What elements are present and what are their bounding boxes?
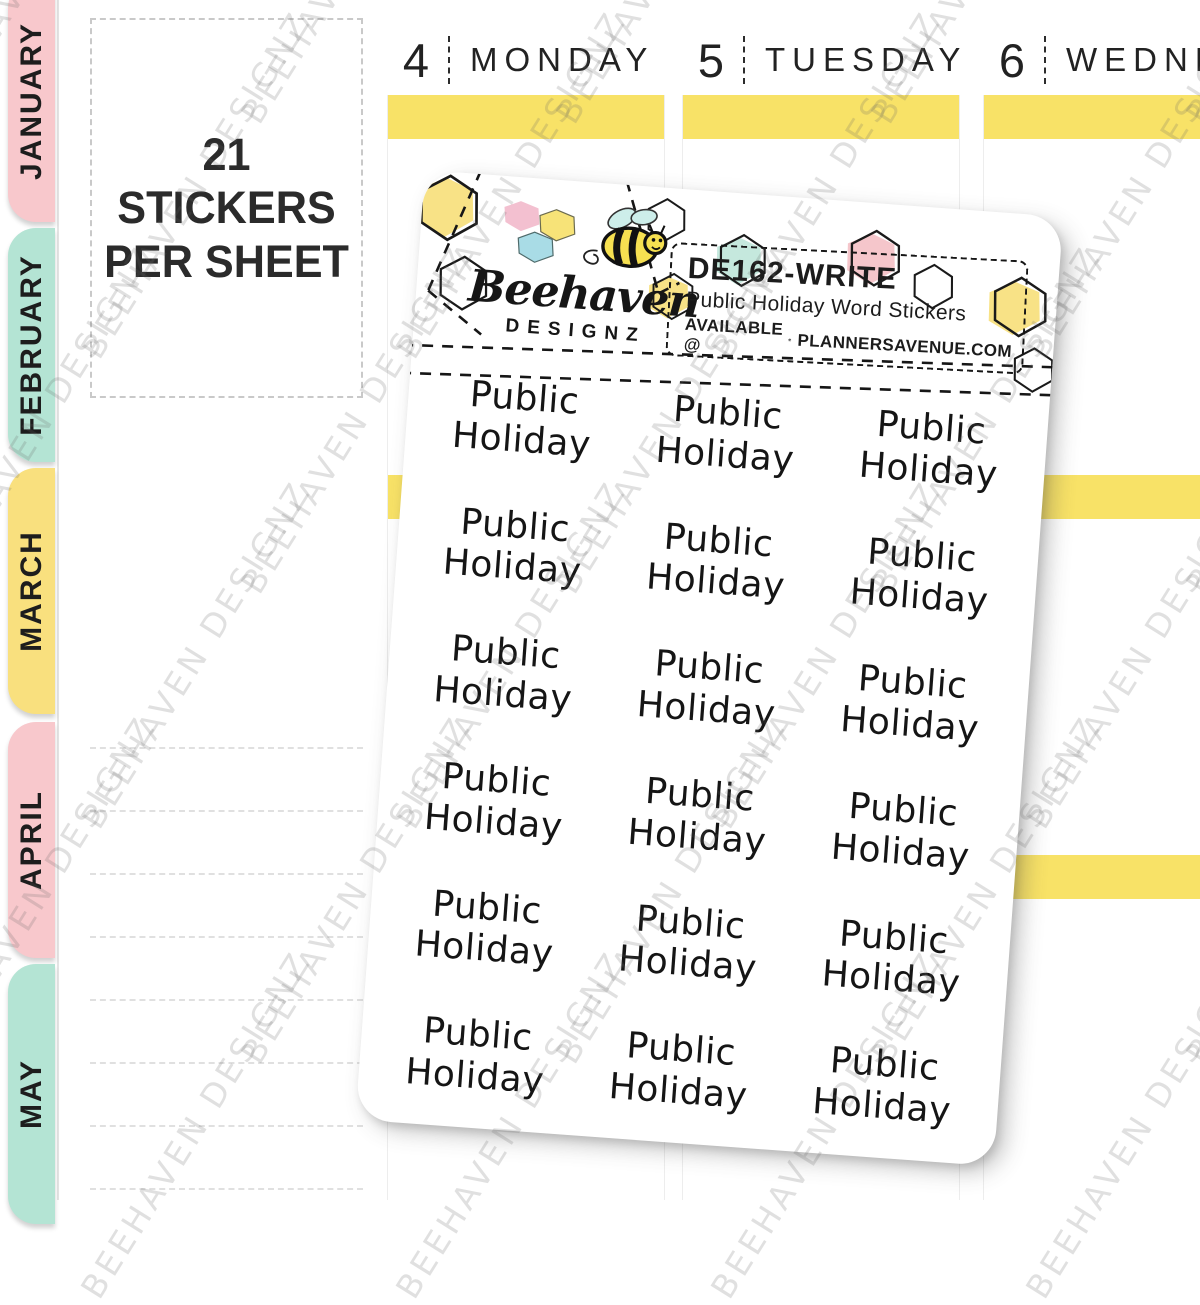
header-divider <box>1044 36 1046 84</box>
month-tab-label: MARCH <box>15 530 49 652</box>
sticker-public-holiday: PublicHoliday <box>573 1000 786 1142</box>
storefront-icon <box>788 329 792 350</box>
month-tab-april: APRIL <box>8 722 55 958</box>
brand-logo: Beehaven DESIGNZ <box>465 190 695 351</box>
highlight-bar <box>683 95 959 139</box>
sticker-public-holiday: PublicHoliday <box>795 760 1008 902</box>
day-name: MONDAY <box>470 41 654 79</box>
highlight-bar <box>984 855 1200 899</box>
header-divider <box>743 36 745 84</box>
sticker-public-holiday: PublicHoliday <box>823 378 1036 520</box>
day-name: WEDNESDAY <box>1066 41 1200 79</box>
day-header-tuesday: 5 TUESDAY <box>685 30 967 90</box>
highlight-bar <box>388 95 664 139</box>
sticker-public-holiday: PublicHoliday <box>777 1015 990 1157</box>
ruled-line <box>90 873 363 875</box>
ruled-line <box>90 1062 363 1064</box>
month-tab-march: MARCH <box>8 468 55 714</box>
ruled-line <box>90 810 363 812</box>
month-tab-february: FEBRUARY <box>8 228 55 462</box>
sticker-public-holiday: PublicHoliday <box>379 858 592 1000</box>
highlight-bar <box>984 95 1200 139</box>
month-tab-january: JANUARY <box>8 0 55 222</box>
sticker-public-holiday: PublicHoliday <box>620 363 833 505</box>
day-number: 5 <box>685 33 737 88</box>
sticker-public-holiday: PublicHoliday <box>592 745 805 887</box>
sticker-count-text: 21 STICKERS PER SHEET <box>97 128 355 287</box>
sticker-sheet: Beehaven DESIGNZ DE162-WRITE Public Holi… <box>355 170 1063 1166</box>
sticker-public-holiday: PublicHoliday <box>370 985 583 1127</box>
sticker-public-holiday: PublicHoliday <box>398 603 611 745</box>
sticker-public-holiday: PublicHoliday <box>417 349 630 491</box>
sticker-public-holiday: PublicHoliday <box>583 873 796 1015</box>
header-divider <box>448 36 450 84</box>
sticker-public-holiday: PublicHoliday <box>611 491 824 633</box>
month-tab-label: FEBRUARY <box>15 254 49 436</box>
sticker-grid: PublicHolidayPublicHolidayPublicHolidayP… <box>370 349 1036 1158</box>
sticker-public-holiday: PublicHoliday <box>805 633 1018 775</box>
sticker-count-panel: 21 STICKERS PER SHEET <box>90 18 363 398</box>
day-header-monday: 4 MONDAY <box>390 30 654 90</box>
ruled-line <box>90 936 363 938</box>
day-number: 4 <box>390 33 442 88</box>
month-tab-label: MAY <box>15 1059 49 1129</box>
sticker-public-holiday: PublicHoliday <box>601 618 814 760</box>
ruled-line <box>90 1125 363 1127</box>
sticker-public-holiday: PublicHoliday <box>814 506 1027 648</box>
ruled-line <box>90 1188 363 1190</box>
month-tab-label: APRIL <box>15 790 49 890</box>
month-tab-label: JANUARY <box>15 22 49 180</box>
watermark-text: BEEHAVEN DESIGNZ <box>73 474 319 836</box>
sticker-public-holiday: PublicHoliday <box>407 476 620 618</box>
availability-site: PLANNERSAVENUE.COM <box>797 330 1012 361</box>
sticker-public-holiday: PublicHoliday <box>389 731 602 873</box>
day-number: 6 <box>986 33 1038 88</box>
sticker-public-holiday: PublicHoliday <box>786 888 999 1030</box>
ruled-line <box>90 747 363 749</box>
product-info-label: DE162-WRITE Public Holiday Word Stickers… <box>665 242 1028 375</box>
day-name: TUESDAY <box>765 41 967 79</box>
month-tab-may: MAY <box>8 964 55 1224</box>
ruled-line <box>90 999 363 1001</box>
day-header-wednesday: 6 WEDNESDAY <box>986 30 1200 90</box>
availability-prefix: AVAILABLE @ <box>683 314 783 359</box>
page-edge <box>57 0 59 1200</box>
